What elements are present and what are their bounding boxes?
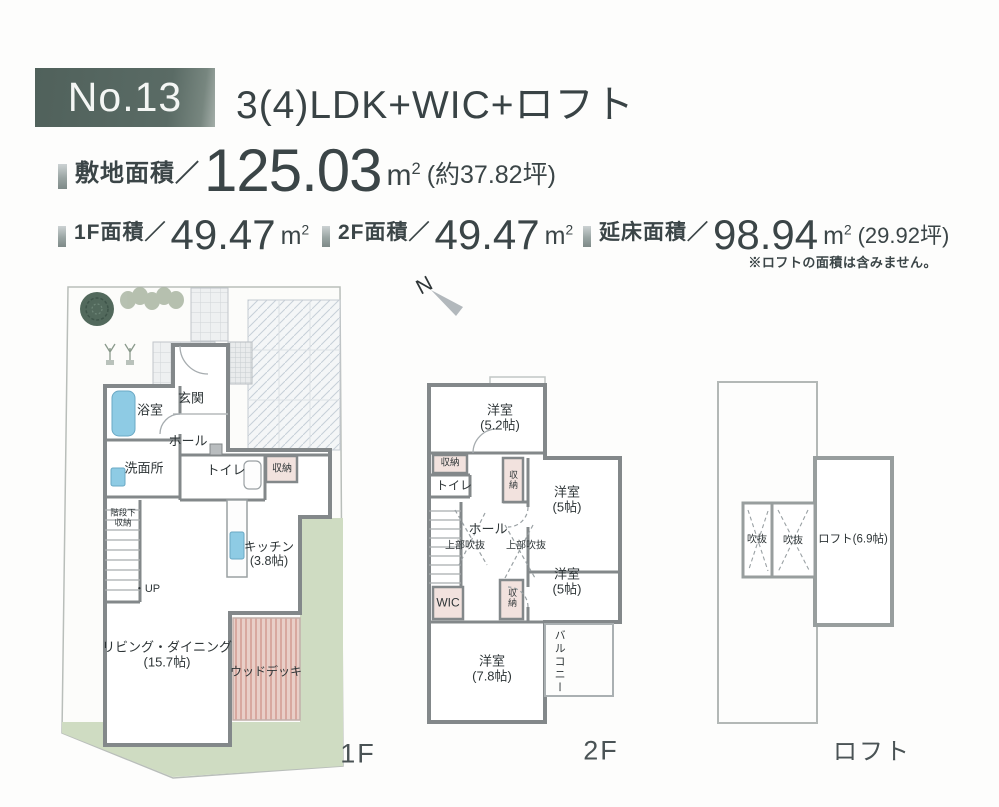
page-title: 3(4)LDK+WIC+ロフト: [236, 74, 635, 130]
room-label-balcony: バルコニー: [553, 630, 565, 695]
floor-label-1f: 1F: [340, 739, 376, 770]
room-label-wood-deck: ウッドデッキ: [230, 665, 302, 678]
total-area-value: 98.94: [713, 218, 818, 252]
site-area-tsubo: (約37.82坪): [427, 155, 556, 191]
toilet-icon: [244, 461, 261, 489]
f2-area-unit: m2: [545, 222, 573, 251]
floorplan-1f: 浴室 玄関 ホール 洗面所 トイレ 収納 階段下収納 ・UP キッチン(3.8帖…: [60, 282, 395, 782]
room-label-hall-2f: ホール: [468, 523, 507, 538]
room-label-bedroom1: 洋室(5.2帖): [480, 403, 520, 432]
room-label-entrance: 玄関: [178, 392, 204, 407]
f1-area-label: 1F面積／: [74, 216, 167, 246]
site-area-value: 125.03: [204, 146, 382, 195]
room-label-loft: ロフト(6.9帖): [818, 534, 888, 547]
room-label-under-stairs: 階段下収納: [110, 508, 136, 527]
site-area-unit: m2: [387, 159, 421, 193]
room-label-toilet-2f: トイレ: [436, 479, 472, 492]
lawn-right-strip: [300, 518, 343, 728]
f2-area-stat: 2F面積／ 49.47 m2: [322, 216, 579, 252]
room-label-kitchen: キッチン(3.8帖): [244, 540, 294, 568]
room-label-bath: 浴室: [137, 404, 163, 419]
tree-icon: [80, 292, 114, 326]
room-label-bedroom2: 洋室(5帖): [553, 485, 582, 514]
floorplan-loft: 吹抜 吹抜 ロフト(6.9帖) ロフト: [700, 375, 960, 775]
room-label-void1: 吹抜: [747, 534, 767, 545]
room-label-living: リビング・ダイニング(15.7帖): [102, 640, 232, 669]
sink-icon: [111, 468, 125, 486]
total-area-unit: m2: [823, 222, 851, 251]
porch-step: [228, 342, 252, 384]
room-label-storage: 収納: [272, 463, 292, 474]
room-label-storage-b: 収納: [508, 470, 518, 490]
roof-line: [490, 377, 545, 384]
plan-number: No.13: [68, 74, 182, 121]
f1-area-stat: 1F面積／ 49.47 m2: [58, 216, 315, 252]
f1-area-value: 49.47: [171, 218, 276, 252]
flyer-page: No.13 3(4)LDK+WIC+ロフト 敷地面積／ 125.03 m2 (約…: [0, 0, 999, 807]
floorplan-loft-drawing: [700, 375, 960, 775]
pipe-space: [210, 444, 222, 455]
floorplan-2f: 洋室(5.2帖) 収納 トイレ 収納 洋室(5帖) ホール 上部吹抜 上部吹抜 …: [415, 375, 665, 775]
stat-bullet-icon: [583, 226, 591, 247]
room-label-toilet: トイレ: [206, 464, 245, 479]
stat-bullet-icon: [58, 164, 67, 189]
plan-number-badge: No.13: [35, 68, 215, 127]
stat-bullet-icon: [322, 226, 330, 247]
loft-exclusion-note: ※ロフトの面積は含みません。: [700, 252, 937, 271]
room-label-storage-c: 収納: [507, 588, 517, 608]
room-label-wic: WIC: [436, 596, 459, 609]
floor-label-loft: ロフト: [833, 732, 911, 767]
kitchen-sink-icon: [230, 532, 244, 559]
bathtub-icon: [112, 391, 135, 436]
site-area-stat: 敷地面積／ 125.03 m2 (約37.82坪): [58, 146, 556, 195]
site-area-label: 敷地面積／: [75, 153, 200, 188]
room-label-void-right: 上部吹抜: [506, 540, 546, 551]
room-label-void-left: 上部吹抜: [445, 540, 485, 551]
room-label-bedroom3: 洋室(5帖): [553, 567, 582, 596]
approach-tiles: [191, 288, 228, 341]
room-label-storage-a: 収納: [440, 459, 459, 470]
total-area-label: 延床面積／: [599, 216, 709, 246]
room-label-void2: 吹抜: [783, 535, 803, 546]
total-area-stat: 延床面積／ 98.94 m2 (29.92坪): [583, 216, 949, 252]
f2-area-value: 49.47: [435, 218, 540, 252]
north-arrow: N: [405, 268, 475, 328]
f1-area-unit: m2: [281, 222, 309, 251]
driveway: [248, 300, 340, 450]
label-up: ・UP: [134, 583, 160, 595]
room-label-hall: ホール: [168, 435, 207, 450]
floorplan-2f-drawing: [415, 375, 665, 775]
room-label-washroom: 洗面所: [124, 462, 163, 477]
floor-label-2f: 2F: [583, 736, 619, 767]
room-label-bedroom4: 洋室(7.8帖): [472, 654, 512, 683]
floorplan-1f-drawing: [60, 282, 395, 782]
f2-area-label: 2F面積／: [338, 216, 431, 246]
stat-bullet-icon: [58, 226, 66, 247]
total-area-tsubo: (29.92坪): [858, 218, 950, 250]
